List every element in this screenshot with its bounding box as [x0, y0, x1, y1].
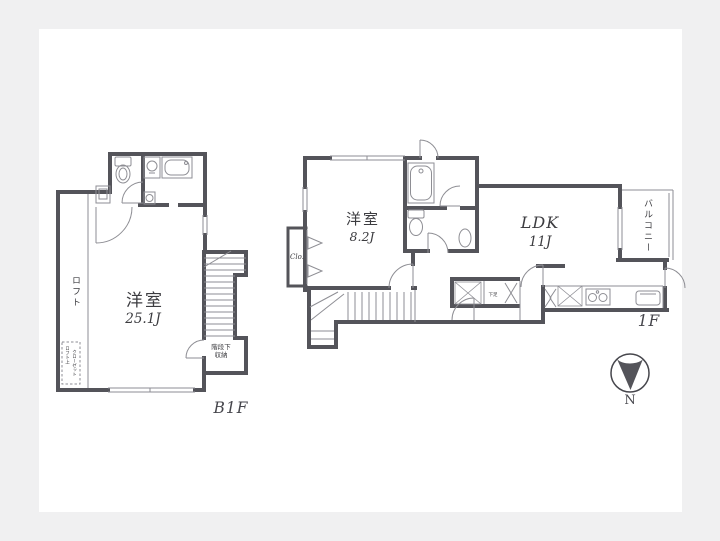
ldk-size: 11J	[529, 234, 553, 250]
stair-storage-label-line2: 収納	[215, 350, 228, 359]
b1f-dashed-closet-label-col1: ロフト上	[65, 346, 70, 365]
b1f-staircase	[204, 251, 246, 336]
compass-north-label: N	[624, 393, 635, 408]
compass-needle-icon	[617, 359, 643, 390]
bedroom-label: 洋室	[346, 210, 380, 228]
b1f-room-size: 25.1J	[124, 311, 162, 327]
1f-basin-icon	[459, 229, 471, 247]
b1f-door-arcs	[96, 182, 204, 358]
b1f-toilet-icon	[115, 157, 131, 183]
bedroom-size: 8.2J	[350, 229, 376, 244]
b1f-dashed-closet-label-col2: クローゼット	[72, 349, 77, 377]
shoe-cabinet-label: 下足	[489, 292, 498, 298]
stove-icon	[586, 289, 610, 305]
closet-label: Clo.	[290, 253, 304, 261]
ldk-label: LDK	[520, 213, 559, 232]
1f-floor-plan	[288, 140, 685, 347]
sink-icon	[636, 291, 660, 305]
1f-walls	[305, 158, 667, 347]
floor-plan-drawing: N 洋室 25.1J ロフト 階段下 収納 ロフト上 クローゼット B1F 洋室…	[0, 0, 720, 541]
kitchen-counter	[545, 286, 663, 308]
balcony-label: バルコニー	[642, 198, 653, 253]
b1f-bathtub-icon	[162, 157, 192, 178]
b1f-floor-label: B1F	[212, 399, 248, 417]
1f-toilet-icon	[408, 210, 424, 236]
1f-staircase	[310, 290, 415, 339]
b1f-room-label: 洋室	[126, 291, 164, 311]
floor-plan-page: N 洋室 25.1J ロフト 階段下 収納 ロフト上 クローゼット B1F 洋室…	[0, 0, 720, 541]
b1f-wall-niche	[96, 186, 110, 203]
compass: N	[611, 354, 649, 408]
1f-floor-label: 1F	[638, 312, 661, 330]
b1f-washer-icon	[144, 192, 155, 204]
b1f-vanity-icon	[144, 157, 160, 178]
plan-labels: 洋室 25.1J ロフト 階段下 収納 ロフト上 クローゼット B1F 洋室 8…	[65, 198, 661, 417]
stair-storage-label-line1: 階段下	[211, 342, 231, 351]
loft-label: ロフト	[70, 276, 80, 309]
1f-bathtub-icon	[408, 163, 434, 203]
